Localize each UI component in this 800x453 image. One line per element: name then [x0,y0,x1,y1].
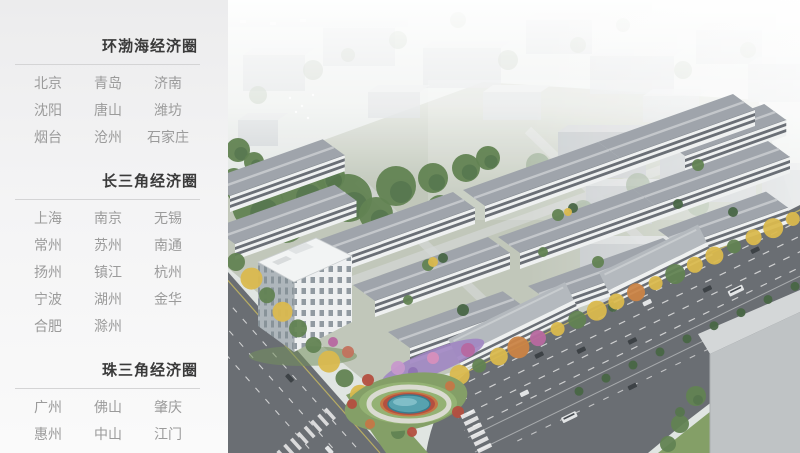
zone-title: 珠三角经济圈 [0,362,198,379]
city-item[interactable]: 镇江 [78,259,138,286]
city-item[interactable]: 上海 [18,205,78,232]
city-item[interactable]: 青岛 [78,70,138,97]
zone-title: 长三角经济圈 [0,173,198,190]
city-item[interactable]: 唐山 [78,97,138,124]
economic-zone-section: 珠三角经济圈广州佛山肇庆惠州中山江门 [0,362,228,448]
city-item[interactable]: 广州 [18,394,78,421]
city-item[interactable]: 肇庆 [138,394,198,421]
city-item[interactable]: 无锡 [138,205,198,232]
city-item[interactable]: 宁波 [18,286,78,313]
city-item[interactable]: 沧州 [78,124,138,151]
city-item[interactable]: 潍坊 [138,97,198,124]
economic-zones-sidebar: 环渤海经济圈北京青岛济南沈阳唐山潍坊烟台沧州石家庄长三角经济圈上海南京无锡常州苏… [0,0,228,453]
page: 环渤海经济圈北京青岛济南沈阳唐山潍坊烟台沧州石家庄长三角经济圈上海南京无锡常州苏… [0,0,800,453]
divider [15,199,200,200]
economic-zone-section: 环渤海经济圈北京青岛济南沈阳唐山潍坊烟台沧州石家庄 [0,38,228,151]
city-item[interactable]: 北京 [18,70,78,97]
city-item[interactable]: 南通 [138,232,198,259]
city-item[interactable]: 扬州 [18,259,78,286]
industrial-park-aerial-image [228,0,800,453]
city-item[interactable]: 金华 [138,286,198,313]
economic-zones-list: 环渤海经济圈北京青岛济南沈阳唐山潍坊烟台沧州石家庄长三角经济圈上海南京无锡常州苏… [0,38,228,448]
city-grid: 北京青岛济南沈阳唐山潍坊烟台沧州石家庄 [18,70,198,151]
aerial-rendering [228,0,800,453]
city-item[interactable]: 湖州 [78,286,138,313]
city-item[interactable]: 石家庄 [138,124,198,151]
city-item[interactable]: 苏州 [78,232,138,259]
city-grid: 上海南京无锡常州苏州南通扬州镇江杭州宁波湖州金华合肥滁州 [18,205,198,340]
city-item[interactable]: 佛山 [78,394,138,421]
divider [15,64,200,65]
city-item[interactable]: 江门 [138,421,198,448]
global-haze [228,0,800,453]
city-item[interactable]: 南京 [78,205,138,232]
city-item[interactable]: 常州 [18,232,78,259]
city-item[interactable]: 杭州 [138,259,198,286]
city-item[interactable]: 烟台 [18,124,78,151]
divider [15,388,200,389]
city-item[interactable]: 沈阳 [18,97,78,124]
zone-title: 环渤海经济圈 [0,38,198,55]
city-item[interactable]: 惠州 [18,421,78,448]
city-item[interactable]: 中山 [78,421,138,448]
economic-zone-section: 长三角经济圈上海南京无锡常州苏州南通扬州镇江杭州宁波湖州金华合肥滁州 [0,173,228,340]
city-item[interactable]: 济南 [138,70,198,97]
city-item[interactable]: 滁州 [78,313,138,340]
city-grid: 广州佛山肇庆惠州中山江门 [18,394,198,448]
city-item[interactable]: 合肥 [18,313,78,340]
